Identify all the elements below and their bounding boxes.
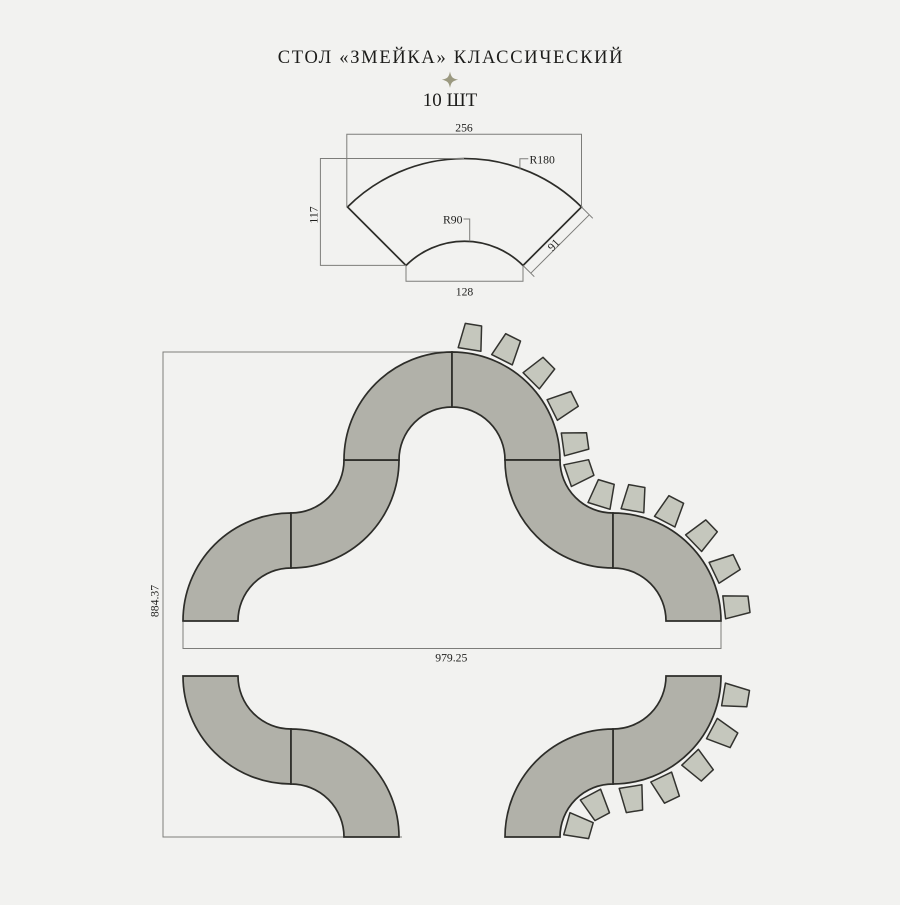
svg-text:256: 256 bbox=[455, 122, 473, 135]
svg-text:СТОЛ «ЗМЕЙКА» КЛАССИЧЕСКИЙ: СТОЛ «ЗМЕЙКА» КЛАССИЧЕСКИЙ bbox=[278, 47, 625, 68]
svg-text:R180: R180 bbox=[530, 154, 555, 167]
svg-text:R90: R90 bbox=[443, 214, 463, 227]
svg-text:117: 117 bbox=[307, 206, 320, 223]
svg-text:128: 128 bbox=[456, 286, 474, 299]
svg-text:884.37: 884.37 bbox=[149, 585, 162, 617]
svg-text:10 ШТ: 10 ШТ bbox=[423, 90, 478, 111]
svg-text:979.25: 979.25 bbox=[435, 652, 467, 665]
